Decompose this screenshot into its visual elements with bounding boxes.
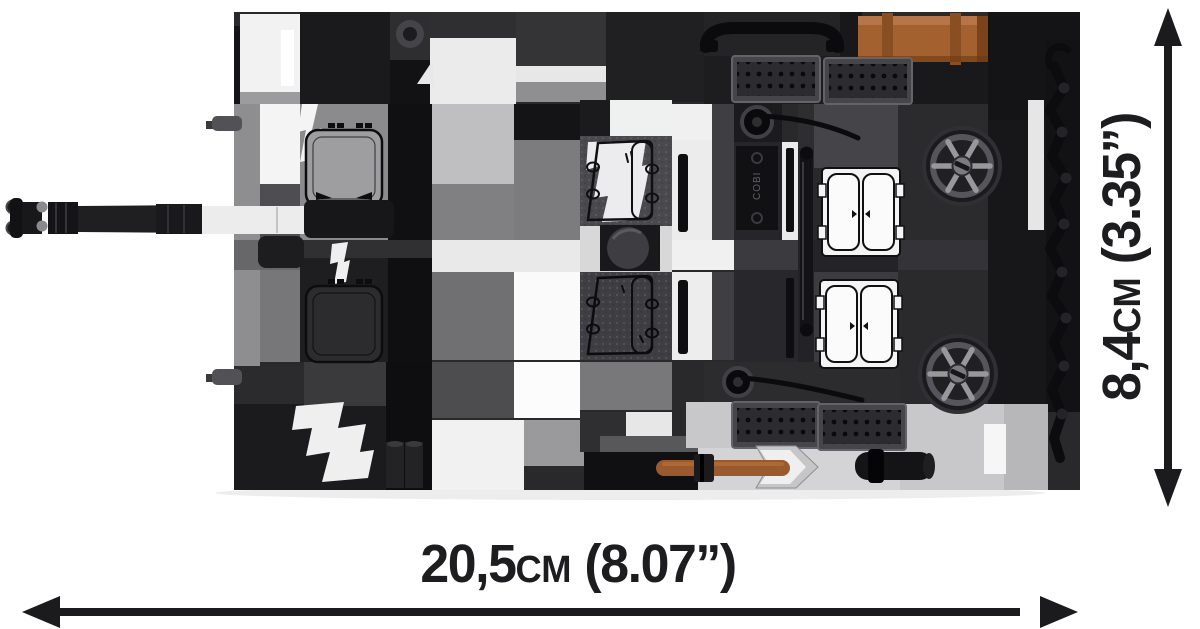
height-unit: cm: [1107, 278, 1149, 333]
central-hatch-top: [580, 136, 672, 226]
cleaning-rod: [800, 147, 813, 337]
width-unit: cm: [515, 549, 570, 591]
height-imperial: (3.35”): [1092, 113, 1152, 264]
tank-model: COBI: [7, 12, 1081, 500]
smoke-candle: [855, 452, 933, 480]
cobi-logo-brick: COBI: [736, 146, 778, 230]
top-stud: [396, 20, 424, 48]
central-hatch-bottom: [580, 272, 672, 360]
height-dimension-label: 8,4cm(3.35”): [1090, 7, 1154, 506]
periscope-cylinder: [600, 225, 660, 271]
width-imperial: (8.07”): [584, 534, 735, 594]
cobi-logo-text: COBI: [752, 172, 763, 200]
width-dimension-arrow: [22, 596, 1078, 628]
mantlet: [304, 200, 394, 238]
width-value: 20,5: [420, 534, 515, 594]
height-dimension-arrow: [1154, 8, 1182, 507]
width-dimension-label: 20,5cm(8.07”): [242, 533, 914, 595]
height-value: 8,4: [1092, 333, 1152, 401]
muzzle-brake-icon: [7, 198, 48, 238]
product-dimension-figure: COBI: [0, 0, 1200, 629]
